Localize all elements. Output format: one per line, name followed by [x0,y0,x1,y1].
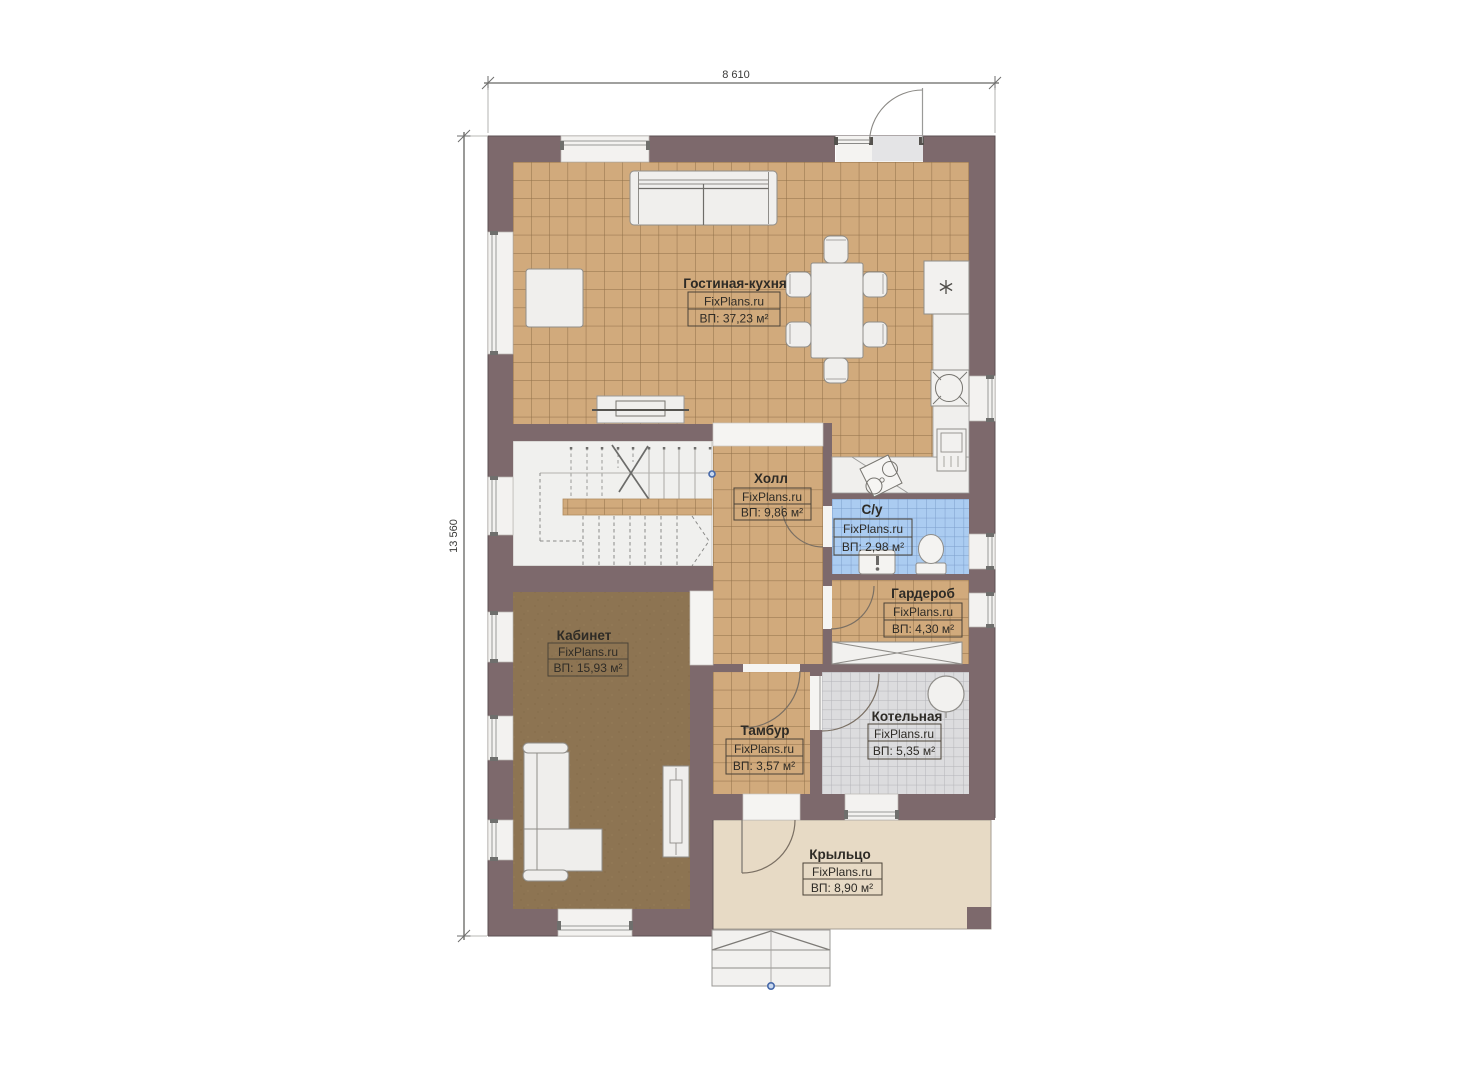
svg-text:Гардероб: Гардероб [891,586,955,601]
svg-text:FixPlans.ru: FixPlans.ru [874,727,934,741]
svg-text:8 610: 8 610 [722,69,750,81]
svg-text:Холл: Холл [754,471,788,486]
svg-text:ВП: 8,90 м²: ВП: 8,90 м² [811,881,873,895]
svg-text:FixPlans.ru: FixPlans.ru [558,645,618,659]
svg-text:ВП: 37,23 м²: ВП: 37,23 м² [700,312,769,326]
svg-text:FixPlans.ru: FixPlans.ru [734,742,794,756]
svg-text:FixPlans.ru: FixPlans.ru [843,522,903,536]
svg-text:13 560: 13 560 [448,519,460,553]
svg-text:FixPlans.ru: FixPlans.ru [893,605,953,619]
svg-text:ВП: 3,57 м²: ВП: 3,57 м² [733,759,795,773]
svg-text:ВП: 9,86 м²: ВП: 9,86 м² [741,506,803,520]
svg-text:FixPlans.ru: FixPlans.ru [742,490,802,504]
svg-text:Тамбур: Тамбур [741,723,790,738]
svg-text:Гостиная-кухня: Гостиная-кухня [683,276,786,291]
svg-text:FixPlans.ru: FixPlans.ru [704,295,764,309]
svg-text:Крыльцо: Крыльцо [809,847,870,862]
svg-text:FixPlans.ru: FixPlans.ru [812,865,872,879]
svg-text:С/у: С/у [861,502,883,517]
svg-text:ВП: 2,98 м²: ВП: 2,98 м² [842,540,904,554]
svg-text:Кабинет: Кабинет [557,628,612,643]
svg-text:ВП: 15,93 м²: ВП: 15,93 м² [554,661,623,675]
svg-text:ВП: 5,35 м²: ВП: 5,35 м² [873,744,935,758]
svg-text:ВП: 4,30 м²: ВП: 4,30 м² [892,622,954,636]
svg-text:Котельная: Котельная [872,709,943,724]
